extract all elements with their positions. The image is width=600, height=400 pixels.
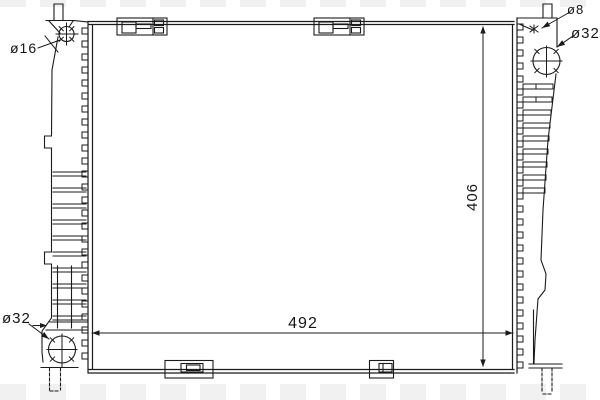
leader-arrow-d32-left-h [40,323,47,328]
leader-arrow-d8 [542,22,550,28]
dim-arrow-406-bottom [480,360,485,368]
label-outlet-diameter: ø32 [2,310,31,327]
left-bottom-pin [50,368,61,391]
top-bracket-left [117,18,167,35]
right-tank-ribs [523,84,553,193]
left-tank [41,4,88,391]
label-bleed-diameter: ø8 [567,2,584,17]
left-tank-outline [41,37,87,368]
dimension-lines [29,12,573,367]
drawing-canvas: ø16 ø8 ø32 ø32 406 492 [0,0,600,400]
top-mount-brackets [117,18,364,35]
label-height-dimension: 406 [464,177,482,217]
dim-arrow-492-left [92,330,100,335]
core-serration-right [517,24,523,368]
right-bottom-pin [542,368,552,394]
right-tank-outline [518,4,562,368]
radiator-line-drawing [0,0,600,400]
label-width-dimension: 492 [283,315,323,333]
right-tank [518,4,562,394]
outlet-pipe-circle [47,334,77,367]
leader-arrow-d32-right [557,40,565,47]
top-bracket-right [314,18,364,35]
filler-opening-circle [56,23,78,45]
label-inlet-diameter: ø32 [571,25,600,42]
dim-arrow-406-top [480,26,485,34]
core-serration-left [82,28,88,359]
dim-arrow-492-right [506,330,514,335]
label-filler-diameter: ø16 [10,40,37,56]
inlet-pipe-circle [531,46,562,77]
